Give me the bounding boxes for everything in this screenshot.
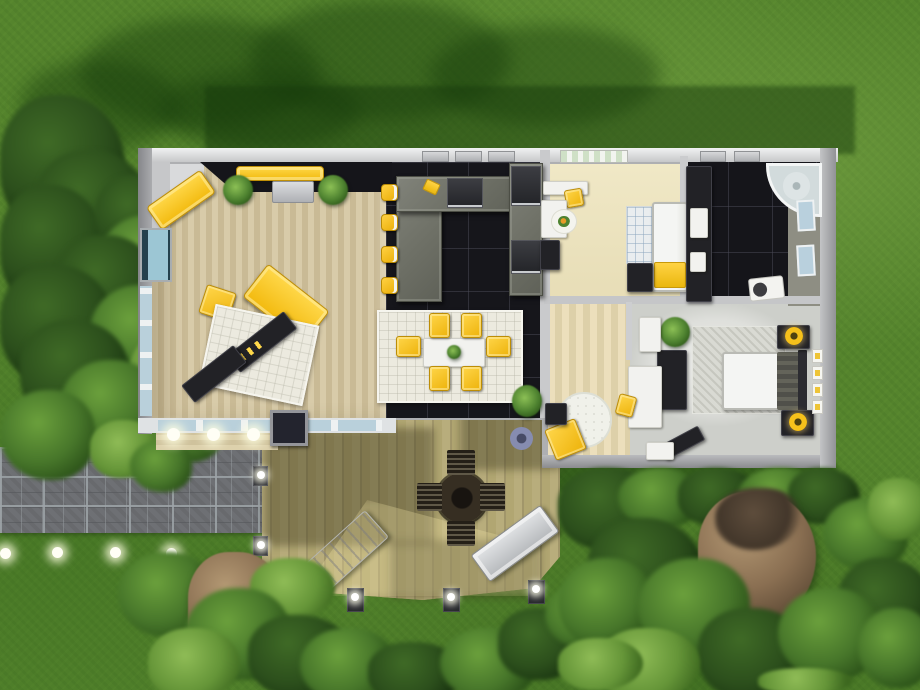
bush[interactable] (778, 588, 880, 680)
bush[interactable] (248, 615, 353, 690)
deck-post-light[interactable] (256, 584, 273, 608)
wood-deck[interactable] (262, 406, 560, 604)
master-bedroom-floor[interactable] (630, 302, 822, 458)
bedroom-bathroom-wall (680, 156, 688, 302)
garden-light[interactable] (110, 547, 121, 558)
tree-shadow (430, 25, 660, 125)
garden-light[interactable] (166, 548, 177, 559)
fern[interactable] (758, 668, 853, 690)
garden-light[interactable] (52, 547, 63, 558)
bush[interactable] (185, 588, 290, 680)
living-room-window-wall[interactable] (158, 420, 382, 431)
game-viewport: Top-down aerial screenshot of a life-sim… (0, 0, 920, 690)
house-shadow (545, 464, 837, 492)
hall-bedroom-wall (626, 302, 632, 360)
tree-shadow (160, 70, 360, 150)
bush[interactable] (788, 468, 860, 524)
rock[interactable] (698, 492, 816, 624)
fern[interactable] (868, 478, 920, 540)
tree[interactable] (0, 185, 105, 310)
bush[interactable] (838, 558, 920, 650)
bush[interactable] (368, 642, 463, 690)
bush[interactable] (558, 468, 663, 550)
bush[interactable] (588, 518, 703, 620)
tree-shadow (80, 18, 320, 128)
tree-shadow (20, 60, 180, 150)
tree[interactable] (0, 95, 125, 235)
tree[interactable] (20, 320, 130, 425)
small-bedroom-floor[interactable] (548, 164, 684, 302)
fern[interactable] (558, 638, 643, 690)
kitchen-dining-floor[interactable] (386, 162, 542, 418)
bush[interactable] (678, 468, 760, 526)
central-wall (544, 296, 824, 304)
living-room-floor[interactable] (152, 164, 388, 422)
bush[interactable] (118, 552, 213, 637)
rock-shade (715, 488, 800, 550)
bush[interactable] (858, 608, 920, 688)
hallway-floor[interactable] (548, 302, 630, 458)
bush[interactable] (738, 468, 820, 524)
tree-shadow (250, 0, 510, 120)
north-wall (138, 148, 838, 162)
south-wall (542, 455, 836, 468)
bathroom-counter-wall (788, 166, 822, 306)
fern[interactable] (598, 628, 700, 690)
tree[interactable] (0, 265, 115, 385)
mailbox[interactable] (20, 427, 52, 438)
house-shadow (205, 86, 855, 154)
east-wall (820, 148, 836, 468)
bush[interactable] (823, 498, 908, 570)
bush[interactable] (498, 608, 583, 680)
fern[interactable] (148, 628, 240, 690)
bush[interactable] (440, 628, 535, 690)
bush[interactable] (698, 608, 810, 690)
bush[interactable] (558, 558, 653, 650)
bush[interactable] (545, 583, 620, 648)
kitchen-bedroom-wall (540, 150, 550, 418)
garden-light[interactable] (0, 548, 11, 559)
bush[interactable] (638, 558, 750, 658)
bush[interactable] (300, 628, 395, 690)
bush[interactable] (618, 468, 700, 528)
living-room-west-windows[interactable] (140, 286, 152, 416)
tree[interactable] (35, 150, 150, 265)
